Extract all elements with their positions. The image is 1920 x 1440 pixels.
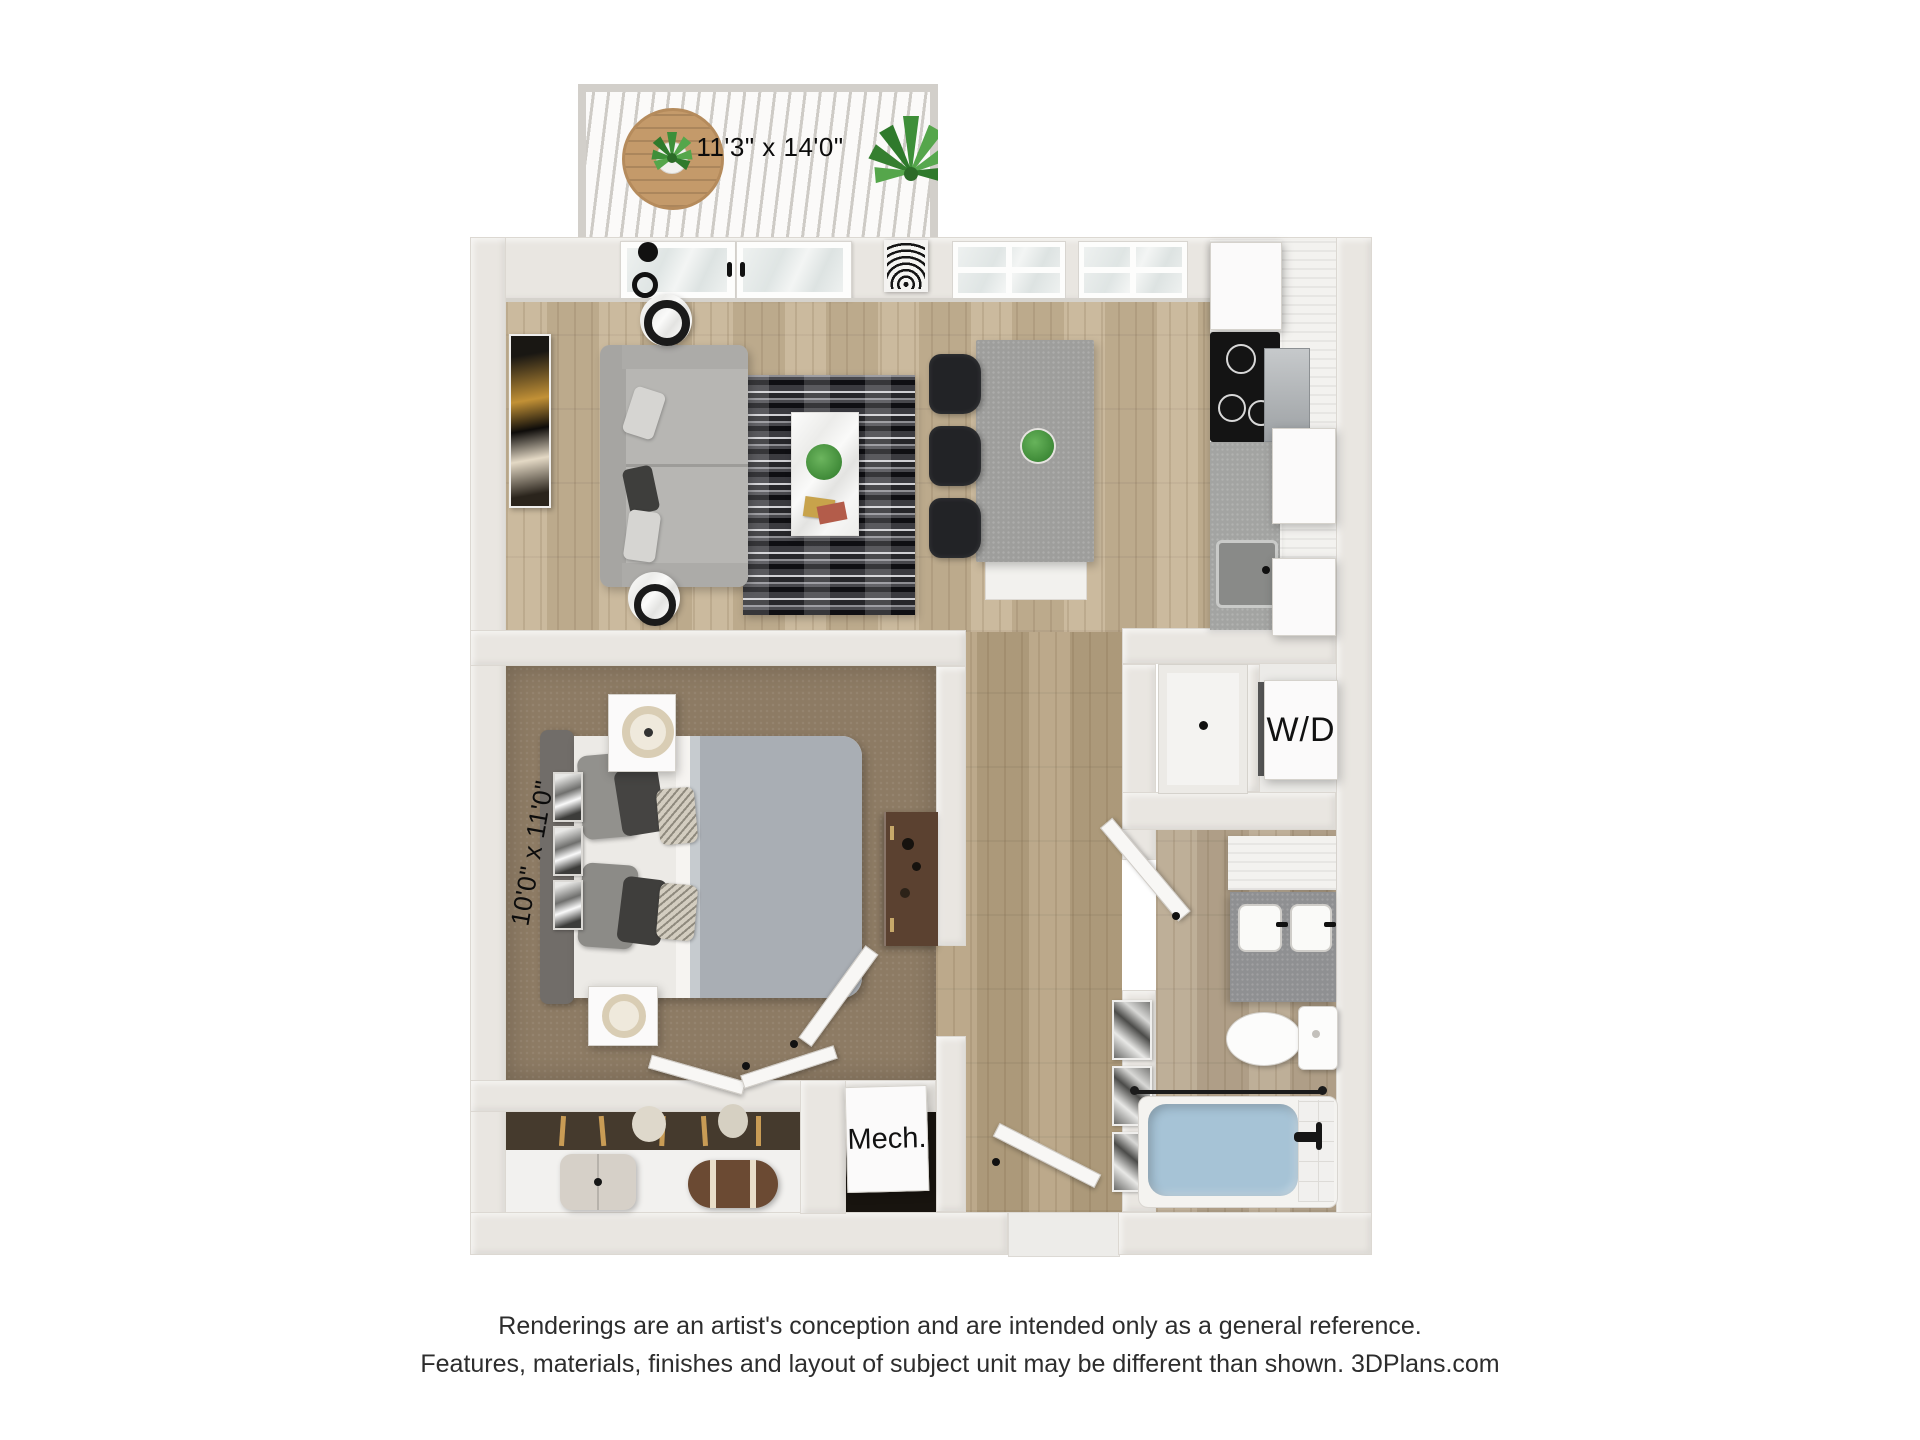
duffel-strap-2 (750, 1160, 756, 1208)
tub-faucet-handle (1316, 1122, 1322, 1150)
stove-burner-1 (1226, 344, 1256, 374)
shower-curtain-rod (1134, 1090, 1324, 1094)
bar-chair-2 (929, 426, 981, 486)
balcony-railing-top (578, 84, 938, 92)
table-lamp-top-icon (644, 300, 690, 346)
bathroom-door-knob (1172, 912, 1180, 920)
storage-cube-knob (594, 1178, 602, 1186)
vanity-faucet-2 (1324, 922, 1336, 927)
closet-door-knob (742, 1062, 750, 1070)
entry-threshold (1008, 1212, 1120, 1257)
kitchen-faucet (1262, 566, 1270, 574)
coffee-table-plant-icon (806, 444, 842, 480)
wall-bedroom-hall-upper (936, 666, 966, 946)
toilet-bowl (1226, 1012, 1302, 1066)
vanity-sink-1 (1238, 904, 1282, 952)
window-1-mullion-h (958, 267, 1060, 273)
mechanical-label: Mech. (847, 1121, 927, 1156)
floor-vase-black (638, 242, 658, 262)
window-unit-1 (952, 241, 1066, 299)
bathroom-upper-cabinet (1228, 836, 1336, 890)
disclaimer-line-1: Renderings are an artist's conception an… (0, 1312, 1920, 1341)
wall-hall-right-upper (1122, 664, 1156, 860)
table-lamp-bottom-icon (634, 584, 676, 626)
vanity-faucet-1 (1276, 922, 1288, 927)
nightstand-upper-lamp-finial (644, 728, 653, 737)
washer-dryer-label: W/D (1266, 711, 1335, 750)
bed-pillow-chevron-2 (656, 882, 699, 941)
bed-duvet-fold-line (690, 736, 700, 998)
bedroom-dresser (884, 812, 938, 946)
kitchen-upper-box-1 (1272, 428, 1336, 524)
kitchen-fridge (1210, 242, 1282, 330)
closet-hanger-2 (599, 1116, 607, 1146)
french-door-handle-left (727, 262, 732, 277)
sofa-pillow-light-1 (621, 385, 666, 441)
window-2-mullion-h (1084, 267, 1182, 273)
nightstand-lower-lamp-icon (602, 994, 646, 1038)
bathtub-basin (1148, 1104, 1298, 1196)
closet-hanger-4 (701, 1116, 708, 1146)
mechanical-unit-box: Mech. (845, 1085, 930, 1193)
closet-stored-pillow-1 (632, 1106, 666, 1142)
dresser-handle-2 (890, 918, 894, 932)
living-wall-art (509, 334, 551, 508)
entry-door-knob (992, 1158, 1000, 1166)
kitchen-upper-box-2 (1272, 558, 1336, 636)
vanity-sink-2 (1290, 904, 1332, 952)
dresser-handle-1 (890, 826, 894, 840)
rod-end-right (1318, 1086, 1327, 1095)
french-door-right (736, 241, 852, 300)
bar-chair-3 (929, 498, 981, 558)
sofa (600, 345, 748, 587)
wall-living-bedroom (470, 630, 966, 666)
pantry-door (1158, 664, 1248, 794)
island-plant-icon (1022, 430, 1054, 462)
closet-stored-pillow-2 (718, 1104, 748, 1138)
pantry-door-knob (1199, 721, 1208, 730)
french-door-handle-right (740, 262, 745, 277)
stove-burner-2 (1218, 394, 1246, 422)
dresser-decor-2 (912, 862, 921, 871)
closet-duffel-bag (688, 1160, 778, 1208)
closet-hanger-5 (756, 1116, 761, 1146)
balcony-railing-left (578, 84, 586, 237)
sofa-pillow-dark (622, 464, 661, 515)
wall-bottom-right (1118, 1212, 1372, 1255)
shower-tile-art-1 (1112, 1000, 1152, 1060)
dresser-decor-1 (902, 838, 914, 850)
toilet-tank (1298, 1006, 1338, 1070)
closet-hanger-1 (559, 1116, 566, 1146)
toilet-flush-button (1312, 1030, 1320, 1038)
disclaimer-line-2: Features, materials, finishes and layout… (0, 1350, 1920, 1379)
bathtub-tile-deck (1298, 1100, 1334, 1202)
living-dimensions-label: 11'3" x 14'0" (610, 130, 930, 164)
floor-vase-ring (632, 272, 658, 298)
wall-wd-bottom (1122, 792, 1336, 830)
bedroom-wall-frame-3 (553, 880, 583, 930)
wall-bottom-left (470, 1212, 1008, 1255)
window-unit-2 (1078, 241, 1188, 299)
duffel-strap-1 (710, 1160, 716, 1208)
sofa-back (600, 345, 626, 587)
bar-chair-1 (929, 354, 981, 414)
dresser-decor-3 (900, 888, 910, 898)
rod-end-left (1130, 1086, 1139, 1095)
wall-art-abstract-icon (884, 240, 928, 292)
closet-storage-cube (560, 1154, 636, 1210)
wall-right (1336, 237, 1372, 1255)
washer-dryer-box: W/D (1264, 680, 1338, 780)
bed-pillow-chevron-1 (656, 786, 699, 845)
french-door-right-glass (743, 248, 843, 292)
bedroom-wall-frame-2 (553, 826, 583, 876)
sofa-pillow-light-2 (623, 509, 662, 563)
closet-back-shelf (506, 1112, 800, 1150)
wall-bedroom-hall-lower (936, 1036, 966, 1212)
floor-plan-canvas: Mech. W/D 11'3" x 14'0" 10'0" x 11'0" Re… (0, 0, 1920, 1440)
bedroom-door-knob (790, 1040, 798, 1048)
island-base (985, 560, 1087, 600)
sofa-arm-top (622, 345, 748, 369)
bed-duvet (690, 736, 862, 998)
kitchen-sink (1216, 540, 1278, 608)
wall-closet-mech-divider (800, 1080, 846, 1214)
